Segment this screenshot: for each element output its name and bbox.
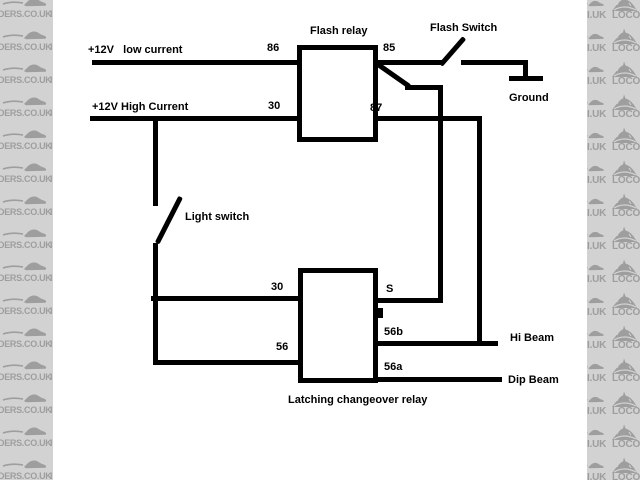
watermark-text-fragment: I	[50, 306, 52, 316]
watermark-text: DERS.CO.UK	[0, 42, 52, 52]
watermark-text: I.UK	[587, 142, 606, 153]
watermark-text: I.UK	[587, 406, 606, 417]
watermark-text: DERS.CO.UK	[0, 306, 52, 316]
wire-30-high-feed	[90, 116, 297, 121]
locost-car-icon	[2, 360, 48, 372]
watermark-text: I.UK	[587, 175, 606, 186]
watermark-text: LOCOST	[612, 439, 640, 450]
watermark-left-column: DERS.CO.UK I DERS.CO.UK I DERS.CO.UK I	[0, 0, 53, 480]
terminal-56b: 56b	[384, 326, 403, 338]
watermark-text: DERS.CO.UK	[0, 141, 52, 151]
locost-car-icon	[587, 394, 605, 406]
watermark-tile: DERS.CO.UK I	[0, 326, 53, 359]
watermark-text-fragment: I	[50, 240, 52, 250]
locost-car-icon	[2, 96, 48, 108]
watermark-text: I.UK	[587, 109, 606, 120]
locost-car-icon	[2, 228, 48, 240]
watermark-right-strip: I.UK LOCOST I.UK LOCOST I.UK	[587, 0, 640, 480]
terminal-30-top: 30	[268, 100, 280, 112]
watermark-text-fragment: I	[50, 207, 52, 217]
locost-car-icon	[587, 163, 605, 175]
watermark-tile: DERS.CO.UK I	[0, 392, 53, 425]
label-flash-switch: Flash Switch	[430, 22, 497, 34]
watermark-text-fragment: I	[50, 273, 52, 283]
terminal-85: 85	[383, 42, 395, 54]
watermark-text-fragment: I	[50, 438, 52, 448]
watermark-tile: I.UK LOCOST	[587, 227, 640, 260]
watermark-tile: I.UK LOCOST	[587, 293, 640, 326]
wire-86-feed	[92, 60, 297, 65]
watermark-text: DERS.CO.UK	[0, 405, 52, 415]
watermark-text: DERS.CO.UK	[0, 438, 52, 448]
watermark-text: DERS.CO.UK	[0, 207, 52, 217]
ground-bar-icon	[509, 76, 543, 81]
locost-car-icon	[587, 31, 605, 43]
locost-car-icon	[2, 426, 48, 438]
watermark-text: LOCOST	[612, 175, 640, 186]
latching-relay-box	[298, 268, 378, 383]
locost-car-icon	[587, 328, 605, 340]
light-switch-lever	[155, 196, 183, 245]
watermark-text: LOCOST	[612, 109, 640, 120]
watermark-text: LOCOST	[612, 340, 640, 351]
wire-flash-to-ground	[461, 60, 528, 65]
watermark-tile: DERS.CO.UK I	[0, 29, 53, 62]
locost-car-icon	[587, 427, 605, 439]
label-dip-beam: Dip Beam	[508, 374, 559, 386]
label-hi-beam: Hi Beam	[510, 332, 554, 344]
watermark-text: I.UK	[587, 307, 606, 318]
watermark-text-fragment: I	[50, 471, 52, 480]
watermark-tile: I.UK LOCOST	[587, 0, 640, 29]
terminal-56a: 56a	[384, 361, 402, 373]
locost-car-icon	[2, 0, 48, 9]
watermark-text: LOCOST	[612, 472, 640, 480]
watermark-text: LOCOST	[612, 373, 640, 384]
terminal-s: S	[386, 283, 393, 295]
watermark-text: I.UK	[587, 472, 606, 480]
watermark-text: DERS.CO.UK	[0, 339, 52, 349]
watermark-text: DERS.CO.UK	[0, 273, 52, 283]
label-latching-relay: Latching changeover relay	[288, 394, 427, 406]
watermark-text: LOCOST	[612, 241, 640, 252]
watermark-text: LOCOST	[612, 208, 640, 219]
locost-car-icon	[2, 162, 48, 174]
watermark-tile: DERS.CO.UK I	[0, 0, 53, 29]
watermark-text: I.UK	[587, 241, 606, 252]
locost-car-icon	[587, 64, 605, 76]
watermark-tile: DERS.CO.UK I	[0, 425, 53, 458]
locost-car-icon	[587, 130, 605, 142]
watermark-tile: DERS.CO.UK I	[0, 293, 53, 326]
label-ground: Ground	[509, 92, 549, 104]
wire-light-switch-lower	[153, 243, 158, 365]
watermark-text: LOCOST	[612, 43, 640, 54]
locost-car-icon	[587, 196, 605, 208]
watermark-tile: I.UK LOCOST	[587, 458, 640, 480]
terminal-30-low: 30	[271, 281, 283, 293]
watermark-text-fragment: I	[50, 372, 52, 382]
wiring-diagram-page: +12V low current +12V High Current Flash…	[0, 0, 640, 480]
watermark-tile: DERS.CO.UK I	[0, 128, 53, 161]
wire-light-switch-upper	[153, 118, 158, 206]
watermark-text: I.UK	[587, 439, 606, 450]
watermark-text: DERS.CO.UK	[0, 108, 52, 118]
watermark-tile: I.UK LOCOST	[587, 128, 640, 161]
watermark-tile: I.UK LOCOST	[587, 392, 640, 425]
watermark-tile: I.UK LOCOST	[587, 62, 640, 95]
locost-car-icon	[2, 294, 48, 306]
watermark-text: DERS.CO.UK	[0, 174, 52, 184]
locost-car-icon	[2, 30, 48, 42]
watermark-text-fragment: I	[50, 42, 52, 52]
watermark-text: DERS.CO.UK	[0, 9, 52, 19]
watermark-text-fragment: I	[50, 75, 52, 85]
watermark-text: LOCOST	[612, 10, 640, 21]
watermark-tile: DERS.CO.UK I	[0, 227, 53, 260]
wire-87-out	[378, 116, 482, 121]
watermark-text-fragment: I	[50, 405, 52, 415]
watermark-tile: DERS.CO.UK I	[0, 458, 53, 480]
locost-car-icon	[2, 129, 48, 141]
watermark-text: I.UK	[587, 76, 606, 87]
watermark-text-fragment: I	[50, 339, 52, 349]
terminal-87: 87	[370, 102, 382, 114]
watermark-text-fragment: I	[50, 9, 52, 19]
wire-85-out	[378, 60, 444, 65]
watermark-text: DERS.CO.UK	[0, 372, 52, 382]
watermark-text: LOCOST	[612, 142, 640, 153]
locost-car-icon	[587, 361, 605, 373]
label-high-current: +12V High Current	[92, 101, 188, 113]
watermark-text: LOCOST	[612, 307, 640, 318]
wire-hi-vertical	[477, 116, 482, 346]
wire-hi-beam	[378, 341, 498, 346]
watermark-text: LOCOST	[612, 274, 640, 285]
watermark-tile: DERS.CO.UK I	[0, 161, 53, 194]
watermark-tile: I.UK LOCOST	[587, 425, 640, 458]
watermark-left-strip: DERS.CO.UK I DERS.CO.UK I DERS.CO.UK I	[0, 0, 53, 480]
locost-car-icon	[587, 295, 605, 307]
watermark-text: DERS.CO.UK	[0, 471, 52, 480]
locost-car-icon	[2, 327, 48, 339]
watermark-text: I.UK	[587, 340, 606, 351]
watermark-text: DERS.CO.UK	[0, 75, 52, 85]
locost-car-icon	[2, 261, 48, 273]
watermark-text: I.UK	[587, 274, 606, 285]
flash-relay-box	[297, 45, 378, 142]
watermark-tile: I.UK LOCOST	[587, 260, 640, 293]
watermark-tile: DERS.CO.UK I	[0, 62, 53, 95]
label-low-current: +12V low current	[88, 44, 182, 56]
terminal-56: 56	[276, 341, 288, 353]
watermark-tile: I.UK LOCOST	[587, 95, 640, 128]
watermark-text: I.UK	[587, 10, 606, 21]
locost-car-icon	[587, 97, 605, 109]
locost-car-icon	[587, 0, 605, 10]
watermark-tile: DERS.CO.UK I	[0, 359, 53, 392]
watermark-text: LOCOST	[612, 76, 640, 87]
locost-car-icon	[2, 393, 48, 405]
watermark-tile: I.UK LOCOST	[587, 194, 640, 227]
terminal-86: 86	[267, 42, 279, 54]
locost-car-icon	[2, 459, 48, 471]
locost-car-icon	[2, 195, 48, 207]
wire-56	[153, 360, 298, 365]
watermark-text: I.UK	[587, 373, 606, 384]
watermark-text: I.UK	[587, 208, 606, 219]
watermark-text-fragment: I	[50, 174, 52, 184]
locost-car-icon	[587, 460, 605, 472]
watermark-tile: I.UK LOCOST	[587, 161, 640, 194]
terminal-stub	[378, 308, 383, 318]
wire-s-in	[378, 298, 443, 303]
watermark-tile: I.UK LOCOST	[587, 359, 640, 392]
locost-car-icon	[587, 262, 605, 274]
watermark-tile: I.UK LOCOST	[587, 29, 640, 62]
watermark-tile: I.UK LOCOST	[587, 326, 640, 359]
label-light-switch: Light switch	[185, 211, 249, 223]
watermark-text-fragment: I	[50, 141, 52, 151]
wire-30-low	[151, 296, 298, 301]
watermark-text: DERS.CO.UK	[0, 240, 52, 250]
watermark-tile: DERS.CO.UK I	[0, 95, 53, 128]
watermark-tile: DERS.CO.UK I	[0, 260, 53, 293]
watermark-right-column: I.UK LOCOST I.UK LOCOST I.UK	[587, 0, 640, 480]
watermark-text: LOCOST	[612, 406, 640, 417]
watermark-text-fragment: I	[50, 108, 52, 118]
watermark-tile: DERS.CO.UK I	[0, 194, 53, 227]
locost-car-icon	[587, 229, 605, 241]
label-flash-relay: Flash relay	[310, 25, 367, 37]
watermark-text: I.UK	[587, 43, 606, 54]
locost-car-icon	[2, 63, 48, 75]
wire-dip-beam	[378, 377, 502, 382]
